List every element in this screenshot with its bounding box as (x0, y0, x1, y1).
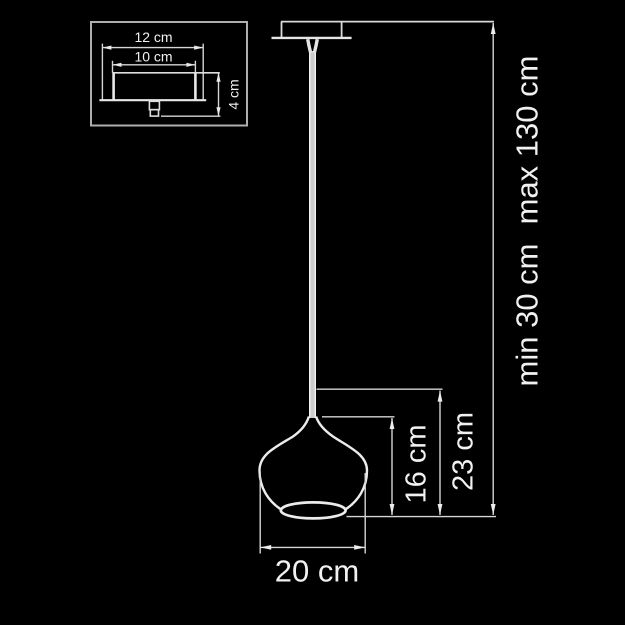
svg-text:10 cm: 10 cm (134, 49, 172, 65)
svg-text:12 cm: 12 cm (134, 29, 172, 45)
svg-text:20 cm: 20 cm (275, 554, 359, 589)
svg-text:16 cm: 16 cm (401, 425, 433, 504)
svg-text:max 130 cm: max 130 cm (510, 56, 545, 225)
svg-text:min 30 cm: min 30 cm (510, 244, 545, 387)
svg-text:4 cm: 4 cm (226, 79, 242, 109)
svg-text:23 cm: 23 cm (448, 412, 480, 491)
